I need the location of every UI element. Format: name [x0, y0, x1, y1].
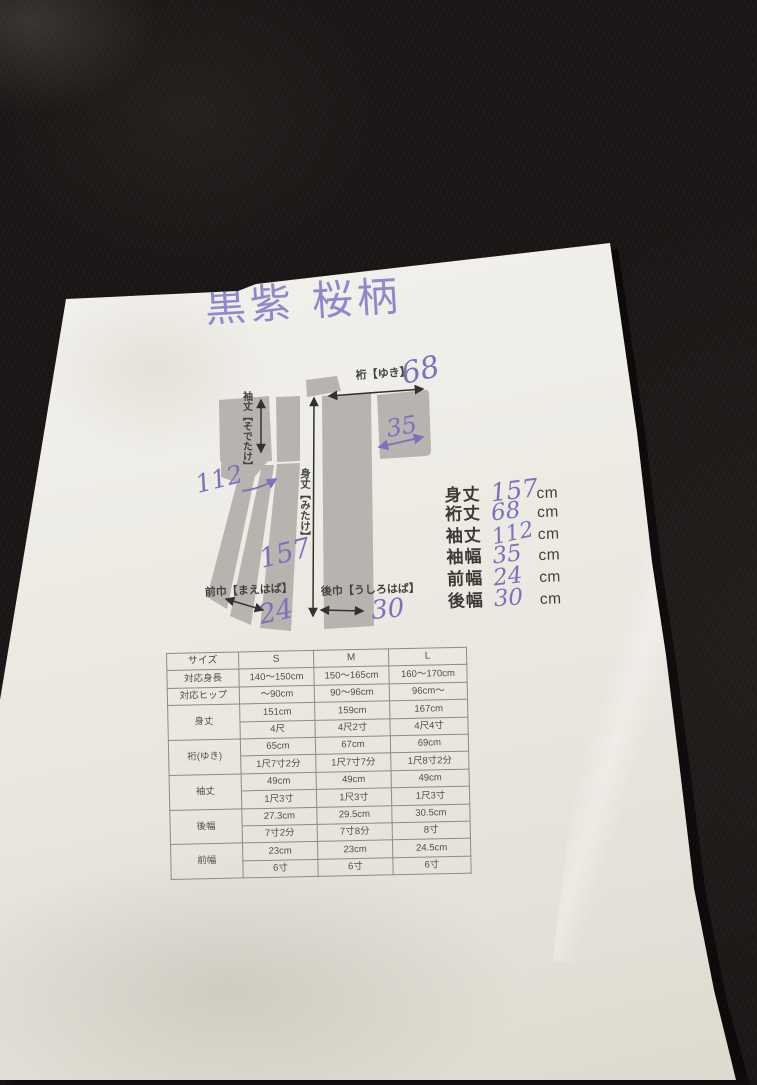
table-cell: 8寸: [392, 821, 470, 840]
measurement-unit: cm: [539, 569, 561, 588]
ushirohaba-arrow: [321, 610, 363, 611]
table-cell: 167cm: [390, 699, 468, 718]
measurement-list: 身丈 157 cm 裄丈 68 cm 袖丈 112 cm 袖幅 35 cm 前幅…: [444, 474, 562, 608]
table-cell: 1尺3寸: [241, 790, 316, 809]
measurement-label: 後幅: [447, 585, 494, 611]
table-cell: 1尺3寸: [316, 788, 391, 807]
measurement-unit: cm: [540, 590, 562, 609]
table-header-cell: L: [388, 647, 466, 666]
table-cell: 160〜170cm: [389, 665, 467, 684]
measurement-value: 30: [493, 583, 541, 612]
table-cell: 151cm: [240, 703, 315, 722]
measurement-row: 前幅 24 cm: [447, 562, 561, 587]
measurement-unit: cm: [538, 547, 560, 566]
size-table: サイズ S M L 対応身長 140〜150cm 150〜165cm 160〜1…: [166, 647, 472, 880]
table-cell: 4尺: [240, 720, 315, 739]
table-cell: 1尺8寸2分: [391, 752, 469, 771]
table-row-label: 袖丈: [169, 774, 242, 810]
table-cell: 7寸2分: [242, 824, 317, 843]
table-cell: 159cm: [315, 701, 390, 720]
measurement-row: 身丈 157 cm: [444, 474, 558, 499]
measurement-row: 袖幅 35 cm: [446, 540, 560, 565]
table-cell: 4尺4寸: [390, 717, 468, 736]
table-row-label: 裄(ゆき): [168, 739, 241, 775]
table-header-cell: M: [313, 649, 388, 668]
table-header-cell: サイズ: [167, 652, 239, 671]
table-cell: 67cm: [315, 736, 390, 755]
table-row-label: 後幅: [170, 808, 243, 844]
sodehaba-annotation: 35: [384, 410, 419, 443]
table-header-cell: S: [238, 650, 313, 669]
table-row-label: 前幅: [171, 843, 244, 879]
table-cell: 29.5cm: [317, 805, 392, 824]
table-row-label: 対応ヒップ: [167, 687, 239, 706]
mitake-label: 身丈【みたけ】: [299, 467, 311, 541]
table-row-label: 対応身長: [167, 669, 239, 688]
table-row-label: 身丈: [168, 704, 241, 740]
table-cell: 1尺7寸7分: [316, 753, 391, 772]
table-cell: 140〜150cm: [239, 668, 314, 687]
measurement-unit: cm: [537, 503, 559, 522]
table-cell: 6寸: [243, 859, 318, 878]
measurement-unit: cm: [538, 525, 560, 544]
yuki-annotation: 68: [398, 349, 443, 392]
table-cell: 27.3cm: [242, 807, 317, 826]
table-cell: 65cm: [240, 737, 315, 756]
table-cell: 90〜96cm: [314, 684, 389, 703]
table-cell: 23cm: [317, 840, 392, 859]
table-cell: 49cm: [241, 772, 316, 791]
table-cell: 6寸: [393, 856, 471, 875]
table-cell: 6寸: [318, 857, 393, 876]
table-cell: 4尺2寸: [315, 718, 390, 737]
table-cell: 24.5cm: [392, 838, 470, 857]
ushirohaba-annotation: 30: [370, 593, 406, 626]
table-cell: 1尺7寸2分: [241, 755, 316, 774]
table-cell: 〜90cm: [239, 685, 314, 704]
table-cell: 96cm〜: [389, 682, 467, 701]
mitake-annotation: 157: [256, 532, 314, 575]
table-cell: 23cm: [243, 842, 318, 861]
table-cell: 69cm: [390, 734, 468, 753]
table-cell: 7寸8分: [317, 823, 392, 842]
table-cell: 1尺3寸: [391, 786, 469, 805]
measurement-row: 後幅 30 cm: [447, 583, 561, 608]
kimono-left-body-panel: [276, 396, 300, 462]
table-cell: 150〜165cm: [314, 666, 389, 685]
mitake-arrow: [313, 398, 314, 616]
table-cell: 49cm: [391, 769, 469, 788]
table-cell: 49cm: [316, 771, 391, 790]
kimono-collar: [306, 376, 341, 397]
table-cell: 30.5cm: [392, 804, 470, 823]
